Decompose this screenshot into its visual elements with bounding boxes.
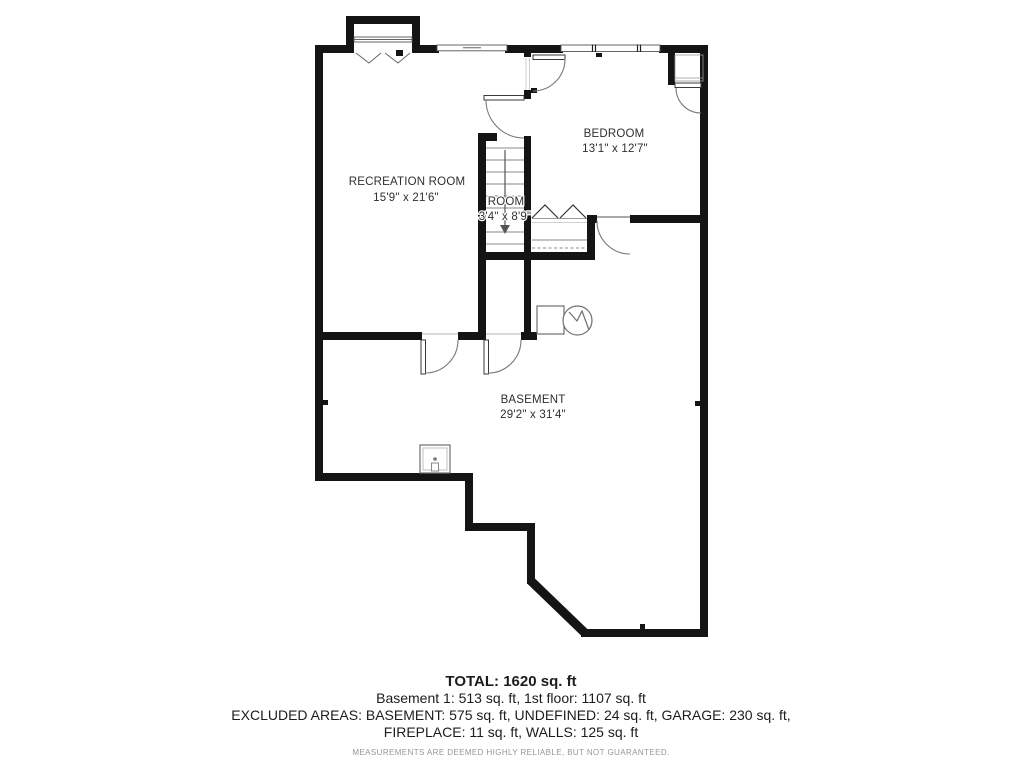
- walls: [315, 16, 708, 637]
- stair-room-dims: 3'4" x 8'9": [479, 211, 531, 223]
- bifold-door-left-icon: [532, 205, 558, 218]
- utility-symbols: [420, 306, 592, 473]
- wall-top-b: [418, 45, 439, 53]
- stair-door: [484, 96, 524, 139]
- bedroom-label: BEDROOM: [584, 128, 645, 140]
- basement-dims: 29'2" x 31'4": [500, 409, 566, 421]
- wall-recroom-bottom-a: [315, 332, 422, 340]
- recreation-room-dims: 15'9" x 21'6": [373, 192, 439, 204]
- wall-left: [315, 45, 323, 481]
- excluded-areas-line1: EXCLUDED AREAS: BASEMENT: 575 sq. ft, UN…: [231, 707, 790, 723]
- total-area-text: TOTAL: 1620 sq. ft: [445, 673, 576, 690]
- basement-door-right: [484, 334, 521, 374]
- wall-recroom-bottom-c: [521, 332, 537, 340]
- stairs-down-arrow-head-icon: [500, 225, 510, 234]
- wall-top-a: [315, 45, 349, 53]
- tr-closet-door: [675, 55, 703, 113]
- basement-door-left: [421, 334, 458, 374]
- sliding-window: [437, 45, 507, 51]
- stair-room-label: ROOM: [488, 196, 525, 208]
- wall-notch-h1: [467, 523, 535, 531]
- wall-stair-left: [478, 133, 486, 340]
- wall-divider-seg1: [524, 45, 531, 57]
- bedroom-entry-door: [597, 217, 630, 254]
- bedroom-door: [526, 55, 565, 91]
- floor-plan-canvas: RECREATION ROOM 15'9" x 21'6" BEDROOM 13…: [0, 0, 1024, 768]
- wall-bottom: [581, 629, 708, 637]
- bedroom-window: [561, 45, 660, 53]
- wall-divider-seg3: [524, 136, 531, 340]
- wall-right: [700, 45, 708, 637]
- summary-footer: TOTAL: 1620 sq. ft Basement 1: 513 sq. f…: [231, 673, 790, 757]
- bifold-closet: [532, 205, 587, 248]
- furnace-icon: [537, 306, 564, 334]
- laundry-tub-icon: [420, 445, 450, 473]
- bay-wall-top: [346, 16, 420, 24]
- bay-window: [354, 37, 412, 63]
- disclaimer-text: MEASUREMENTS ARE DEEMED HIGHLY RELIABLE,…: [352, 748, 669, 757]
- basement-label: BASEMENT: [501, 394, 566, 406]
- wall-diagonal: [530, 580, 586, 634]
- included-areas-text: Basement 1: 513 sq. ft, 1st floor: 1107 …: [376, 690, 646, 706]
- wall-notch-v1: [527, 524, 535, 584]
- wall-stair-closet-bottom: [478, 252, 595, 260]
- wall-bedroom-bottom-a: [587, 215, 597, 223]
- wall-top-c: [505, 45, 563, 53]
- wall-bottom-left: [315, 473, 471, 481]
- bay-casement-left-icon: [356, 53, 381, 63]
- recreation-room-label: RECREATION ROOM: [349, 176, 466, 188]
- bedroom-dims: 13'1" x 12'7": [582, 143, 648, 155]
- wall-bedroom-bottom-b: [630, 215, 708, 223]
- wall-tr-closet-left: [668, 53, 675, 85]
- bifold-door-right-icon: [560, 205, 586, 218]
- wall-notch-v2: [465, 473, 473, 531]
- wall-divider-seg2: [524, 90, 531, 99]
- excluded-areas-line2: FIREPLACE: 11 sq. ft, WALLS: 125 sq. ft: [384, 724, 639, 740]
- wall-stair-top: [478, 133, 497, 141]
